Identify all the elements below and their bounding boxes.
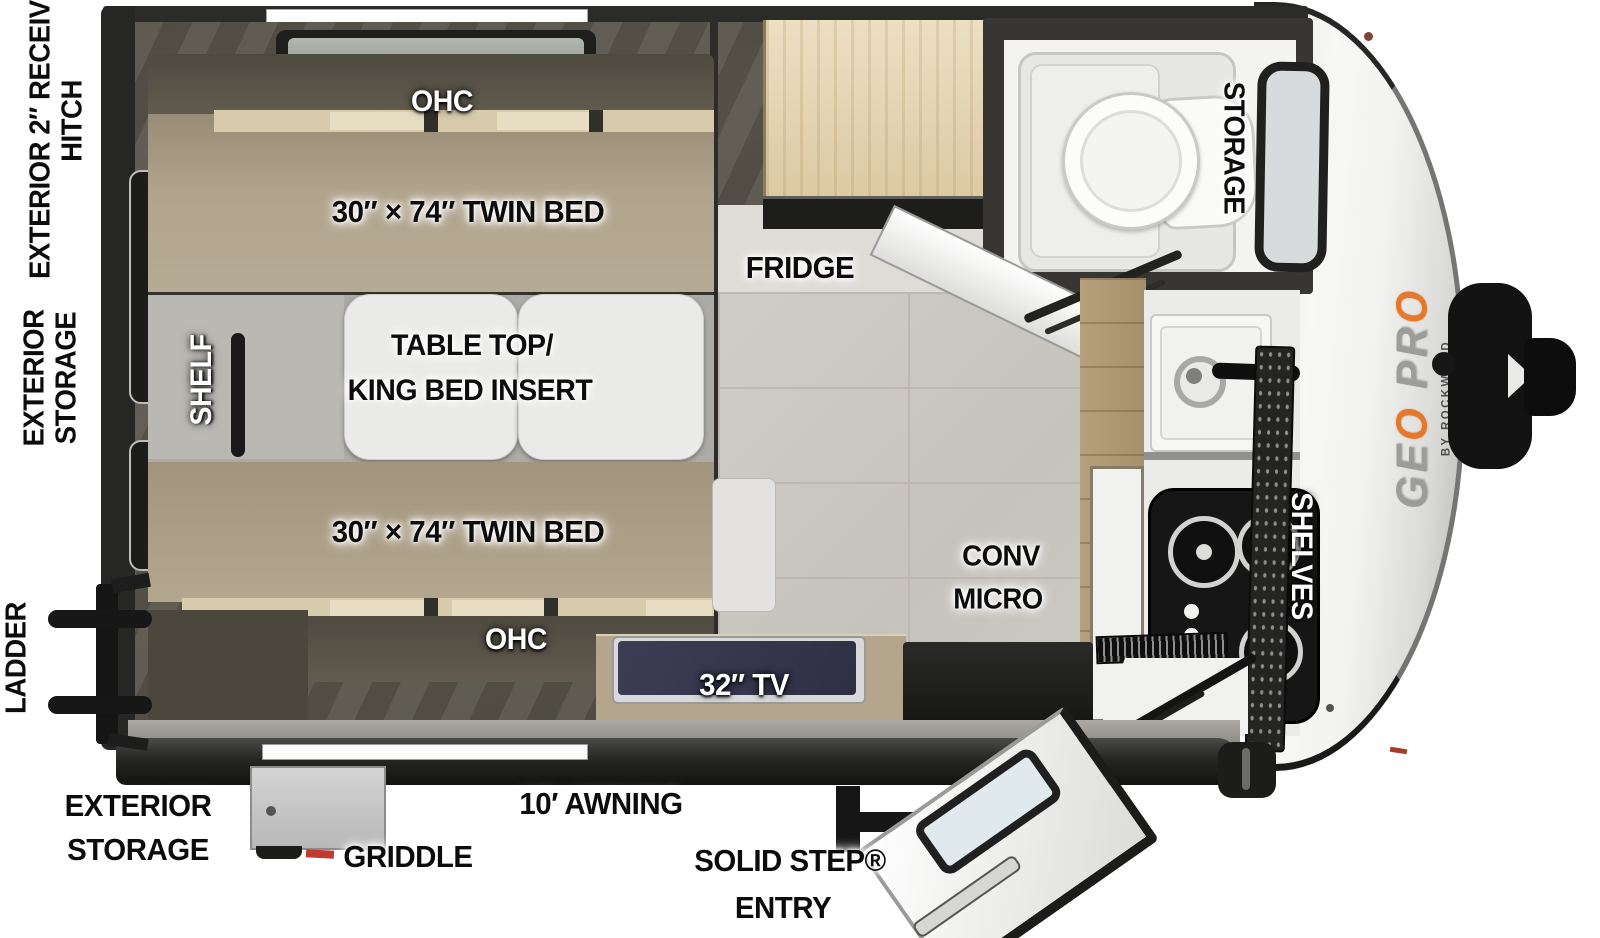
toilet-seat [1080,110,1182,212]
awning-stripe [262,744,588,760]
solid-step-label-line2: ENTRY [735,890,831,926]
shelf-label: SHELF [185,334,219,425]
rail-gap [589,110,603,132]
fridge-counter-edge [763,196,997,229]
ladder-rail [96,584,118,744]
table-top-label-line1: TABLE TOP/ [391,329,553,363]
twin-bed-bottom-label: 30″ × 74″ TWIN BED [332,514,605,550]
fridge-label: FRIDGE [746,250,854,286]
table-top-label-line2: KING BED INSERT [348,374,593,408]
shelf-trim [231,333,245,457]
exterior-storage-left-line2: STORAGE [51,309,83,446]
logo-o-icon: O [1388,287,1437,323]
faucet-icon [1186,368,1202,384]
wall-patch [715,22,770,214]
corner-seat [148,610,308,732]
exterior-storage-left-line1: EXTERIOR [19,309,51,446]
logo-o-icon: O [1388,405,1437,441]
side-table [712,478,776,612]
marker-reflector-icon [1390,747,1408,755]
receiver-hitch-label-line1: EXTERIOR 2″ RECEIVER [25,0,57,279]
griddle-knob-icon [266,806,276,816]
ladder-rung [48,610,152,628]
awning-bracket-slot [1242,748,1250,790]
pillow [330,112,424,130]
hitch-knob [1432,352,1456,376]
tv-label: 32″ TV [699,667,789,703]
bathroom-storage-shelf [1254,61,1330,272]
exterior-storage-left-label: EXTERIOR STORAGE [19,309,84,446]
ladder-label: LADDER [1,602,34,714]
exterior-storage-bottom-line1: EXTERIOR [65,788,212,824]
roof-rail-stripe-top [266,9,588,23]
solid-step-label-line1: SOLID STEP® [694,843,886,879]
shelves-label: SHELVES [1284,492,1318,620]
fridge-overhead-cabinet [763,20,1000,198]
ohc-top-label: OHC [411,85,473,119]
griddle-handle [256,846,302,859]
marker-light-top-icon [1364,32,1373,41]
logo-text: GE [1388,441,1437,509]
ohc-bottom-label: OHC [485,623,547,657]
geo-pro-logo: GEO PRO BY ROCKWOOD [1388,287,1453,509]
receiver-hitch-label-line2: HITCH [57,0,89,279]
conv-micro-label-line1: CONV [962,541,1040,574]
bed-center-platform-left [148,295,344,459]
bath-storage-label: STORAGE [1217,82,1250,214]
pillow [497,112,589,130]
griddle-label: GRIDDLE [343,839,472,875]
conv-micro-label-line2: MICRO [953,584,1042,617]
receiver-hitch-label: EXTERIOR 2″ RECEIVER HITCH [25,0,90,279]
logo-text: PR [1388,323,1437,404]
cooktop-knob-icon [1184,604,1199,619]
twin-bed-top-label: 30″ × 74″ TWIN BED [332,194,605,230]
ladder-rung [48,696,152,714]
griddle-clip [306,849,334,858]
hitch-receiver-tongue [1524,338,1576,416]
floorplan-canvas: GEO PRO BY ROCKWOOD [0,0,1600,938]
burner-icon [1168,516,1240,588]
exterior-storage-bottom-line2: STORAGE [67,832,209,868]
awning-label: 10′ AWNING [519,786,682,822]
marker-light-bottom-icon [1326,704,1334,712]
